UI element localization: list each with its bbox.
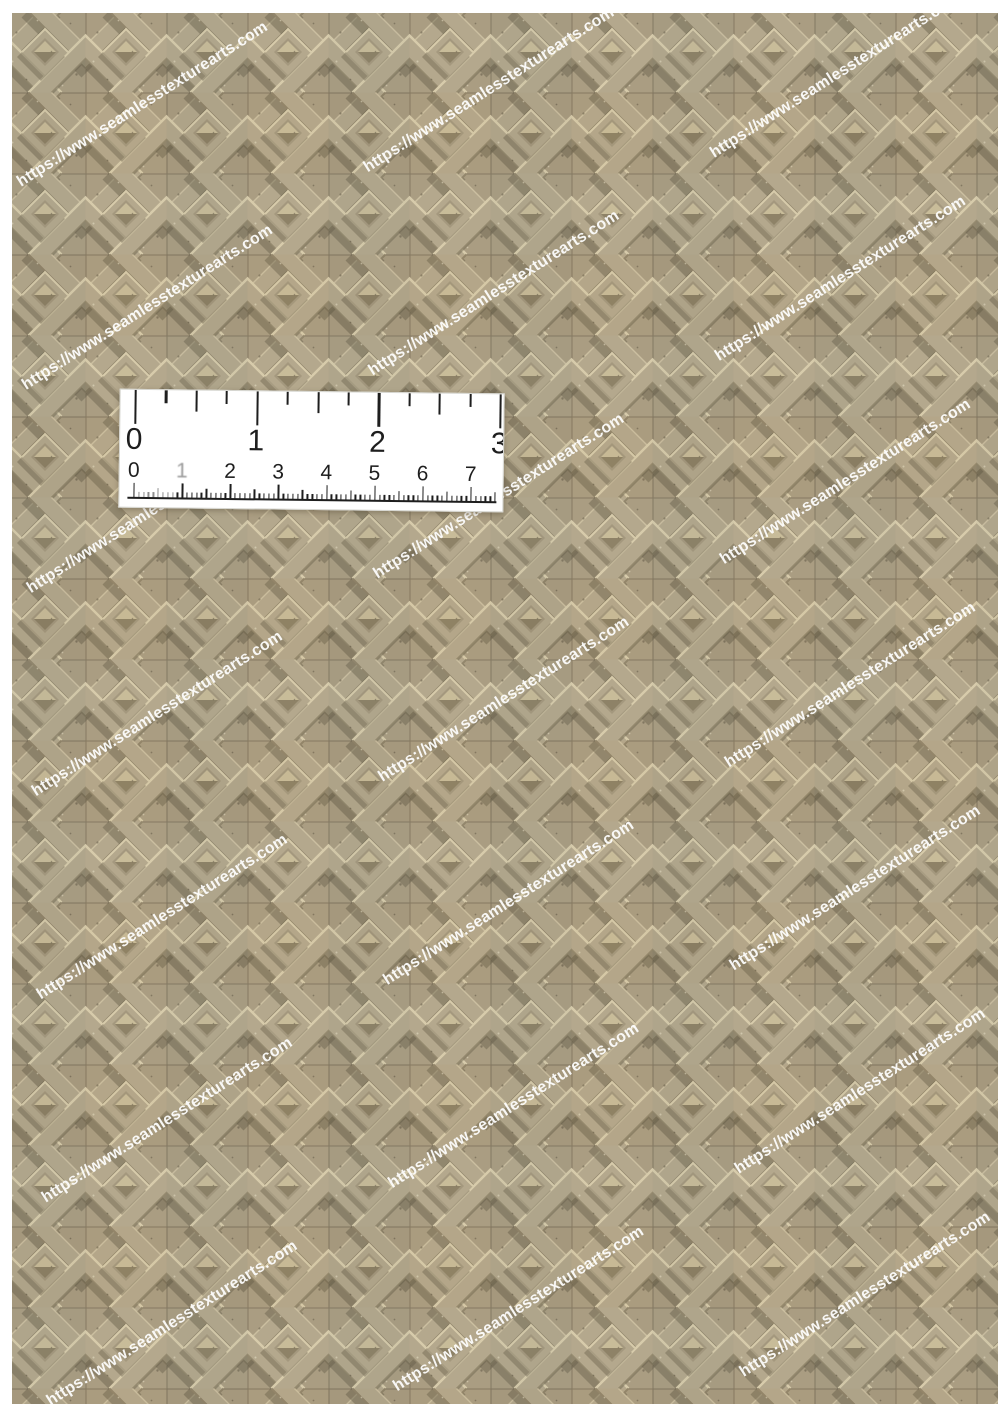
inch-tick xyxy=(378,393,381,427)
mm-tick xyxy=(398,491,400,501)
inch-tick xyxy=(165,390,167,403)
inch-label: 1 xyxy=(247,426,264,456)
inch-tick xyxy=(469,394,471,407)
cm-label: 6 xyxy=(417,463,429,484)
mm-tick xyxy=(157,488,159,498)
inch-label: 2 xyxy=(369,428,386,458)
mm-tick xyxy=(494,492,496,502)
mm-tick xyxy=(470,486,472,501)
inch-tick xyxy=(287,392,289,405)
diamond-trellis-pattern xyxy=(12,13,998,1404)
mm-tick xyxy=(422,486,424,501)
inch-tick xyxy=(408,393,410,406)
cm-label: 3 xyxy=(272,462,284,483)
mm-tick xyxy=(254,489,256,499)
inch-tick xyxy=(226,391,228,404)
mm-tick xyxy=(206,488,208,498)
mm-tick xyxy=(302,489,304,499)
cm-label: 5 xyxy=(368,463,380,484)
cm-label: 0 xyxy=(128,460,140,481)
texture-product-image: https://www.seamlesstexturearts.comhttps… xyxy=(0,0,1005,1421)
cm-label: 1 xyxy=(176,460,188,481)
ruler-overlay: 0123 01234567 xyxy=(118,389,504,513)
inch-tick xyxy=(499,394,502,428)
inch-tick xyxy=(348,392,350,405)
mm-tick xyxy=(133,482,135,497)
mm-tick xyxy=(350,490,352,500)
mm-tick xyxy=(326,485,328,500)
inch-tick xyxy=(317,392,319,413)
mm-tick xyxy=(230,484,232,499)
inch-tick xyxy=(195,391,197,412)
mm-tick xyxy=(446,491,448,501)
stone-texture-photo: https://www.seamlesstexturearts.comhttps… xyxy=(12,13,998,1404)
inch-tick xyxy=(256,391,259,425)
mm-tick xyxy=(182,483,184,498)
inch-label: 0 xyxy=(126,425,143,455)
mm-tick xyxy=(278,484,280,499)
cm-label: 2 xyxy=(224,461,236,482)
cm-label: 4 xyxy=(320,462,332,483)
inch-tick xyxy=(134,390,137,424)
cm-label: 7 xyxy=(465,464,477,485)
mm-tick xyxy=(374,485,376,500)
inch-label: 3 xyxy=(491,429,505,459)
inch-tick xyxy=(439,394,441,415)
